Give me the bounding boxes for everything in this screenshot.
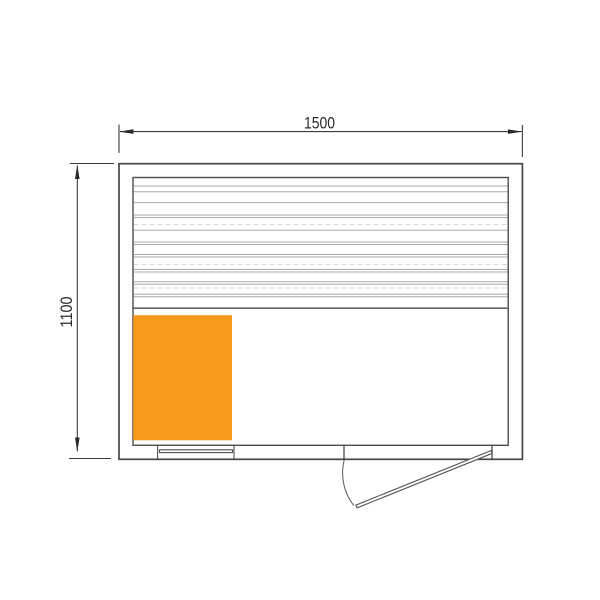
svg-text:1500: 1500: [304, 115, 335, 133]
svg-text:1100: 1100: [58, 297, 76, 328]
